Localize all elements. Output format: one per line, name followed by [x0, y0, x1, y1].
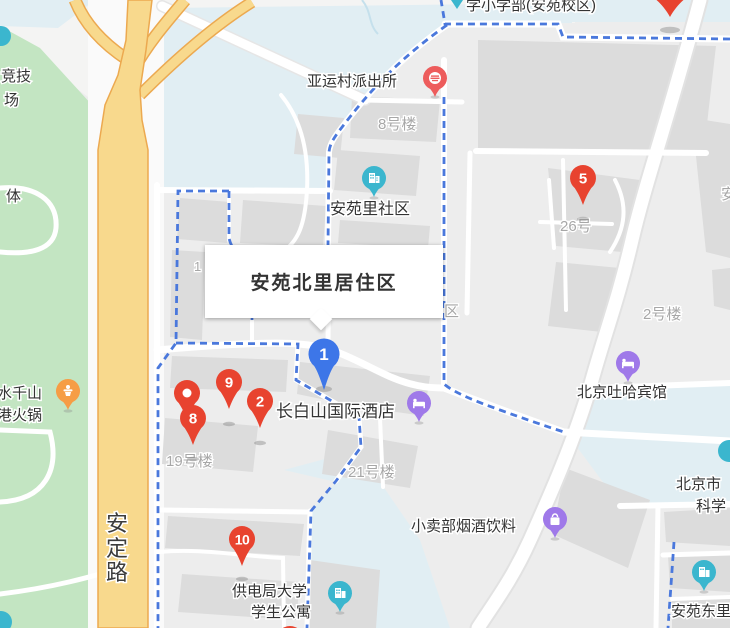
label-school: 学小学部(安苑校区)	[466, 0, 596, 14]
label-community: 安苑里社区	[330, 200, 410, 218]
label-one-partial: 1	[194, 259, 201, 274]
marker-dot-icon	[183, 389, 192, 398]
label-an-partial: 安	[721, 186, 730, 203]
marker-1-label: 1	[319, 345, 328, 364]
label-building-8: 8号楼	[378, 116, 416, 133]
marker-10-label: 10	[235, 532, 250, 548]
label-anding-3: 路	[106, 560, 128, 585]
label-anding-1: 安	[106, 511, 128, 536]
marker-8-label: 8	[189, 411, 197, 428]
info-window-title: 安苑北里居住区	[250, 268, 397, 295]
label-anding-2: 定	[106, 536, 128, 561]
label-dorm-line2: 学生公寓	[251, 603, 311, 621]
label-police-station: 亚运村派出所	[307, 73, 397, 90]
label-shop: 小卖部烟酒饮料	[411, 518, 516, 535]
marker-9-label: 9	[225, 375, 233, 392]
info-window[interactable]: 安苑北里居住区	[205, 245, 443, 318]
label-hotel-tuha: 北京吐哈宾馆	[577, 384, 667, 401]
label-qu-partial: 区	[444, 303, 459, 320]
label-dorm-line1: 供电局大学	[232, 583, 307, 600]
police-badge-icon	[429, 72, 441, 84]
label-jingji: 竞技	[1, 67, 31, 85]
label-dongli: 安苑东里	[671, 603, 730, 620]
marker-2-label: 2	[256, 394, 264, 411]
label-building-19: 19号楼	[166, 453, 213, 470]
label-beijing-line2: 科学	[696, 498, 726, 515]
label-building-2: 2号楼	[643, 306, 681, 323]
marker-5-label: 5	[579, 171, 587, 188]
label-hotpot-line2: 港火锅	[0, 407, 42, 424]
label-building-21: 21号楼	[348, 464, 395, 481]
park-area	[0, 26, 92, 628]
label-beijing-line1: 北京市	[676, 476, 721, 493]
label-hotpot-line1: 水千山	[0, 385, 42, 402]
label-ti: 体	[6, 188, 21, 205]
label-hotel-changbaishan: 长白山国际酒店	[276, 402, 395, 421]
label-chang: 场	[4, 92, 19, 109]
map-canvas[interactable]: 8号楼 26号 2号楼 19号楼 21号楼 区 1 安 学小学部(安苑校区) 亚…	[0, 0, 730, 628]
